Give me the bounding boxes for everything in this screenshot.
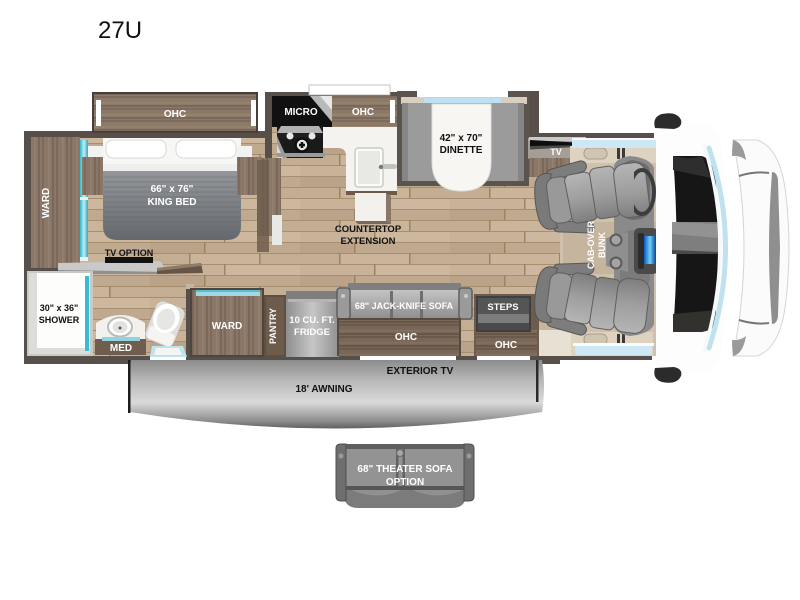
svg-text:66" x 76": 66" x 76": [151, 184, 194, 195]
svg-text:OHC: OHC: [352, 107, 374, 118]
svg-text:BUNK: BUNK: [597, 232, 607, 258]
svg-text:68" JACK-KNIFE SOFA: 68" JACK-KNIFE SOFA: [355, 301, 454, 311]
svg-text:EXTENSION: EXTENSION: [341, 236, 396, 247]
svg-text:MED: MED: [110, 343, 132, 354]
svg-text:FRIDGE: FRIDGE: [294, 327, 330, 338]
svg-text:DINETTE: DINETTE: [440, 145, 483, 156]
svg-text:WARD: WARD: [41, 188, 52, 219]
svg-text:TV: TV: [550, 147, 562, 157]
svg-text:CAB-OVER: CAB-OVER: [586, 221, 596, 270]
svg-text:27U: 27U: [98, 17, 142, 44]
svg-text:STEPS: STEPS: [487, 302, 518, 313]
svg-text:OHC: OHC: [395, 332, 417, 343]
svg-text:OPTION: OPTION: [386, 477, 424, 488]
svg-text:18' AWNING: 18' AWNING: [295, 384, 352, 395]
svg-text:EXTERIOR TV: EXTERIOR TV: [387, 366, 454, 377]
svg-text:PANTRY: PANTRY: [268, 308, 278, 344]
svg-text:30" x 36": 30" x 36": [40, 303, 79, 313]
svg-text:68" THEATER SOFA: 68" THEATER SOFA: [357, 464, 452, 475]
svg-text:OHC: OHC: [495, 340, 517, 351]
svg-text:10 CU. FT.: 10 CU. FT.: [289, 315, 334, 326]
svg-text:SHOWER: SHOWER: [39, 315, 80, 325]
svg-text:MICRO: MICRO: [284, 107, 318, 118]
svg-text:COUNTERTOP: COUNTERTOP: [335, 224, 402, 235]
svg-text:42" x 70": 42" x 70": [440, 133, 483, 144]
svg-text:OHC: OHC: [164, 109, 186, 120]
svg-text:KING BED: KING BED: [148, 197, 197, 208]
svg-text:WARD: WARD: [212, 321, 243, 332]
svg-text:TV OPTION: TV OPTION: [105, 248, 154, 258]
